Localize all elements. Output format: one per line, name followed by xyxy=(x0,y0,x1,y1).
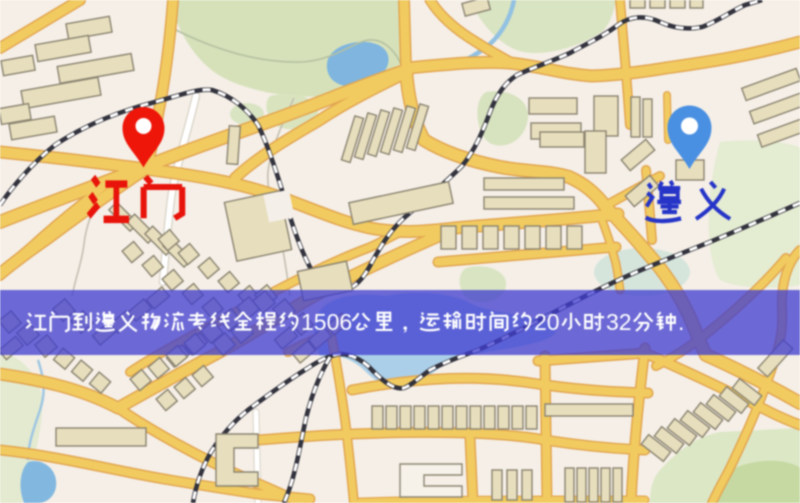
svg-text:1506: 1506 xyxy=(301,309,352,335)
svg-text:32: 32 xyxy=(606,309,632,335)
svg-text:.: . xyxy=(678,309,684,335)
svg-text:20: 20 xyxy=(534,309,560,335)
